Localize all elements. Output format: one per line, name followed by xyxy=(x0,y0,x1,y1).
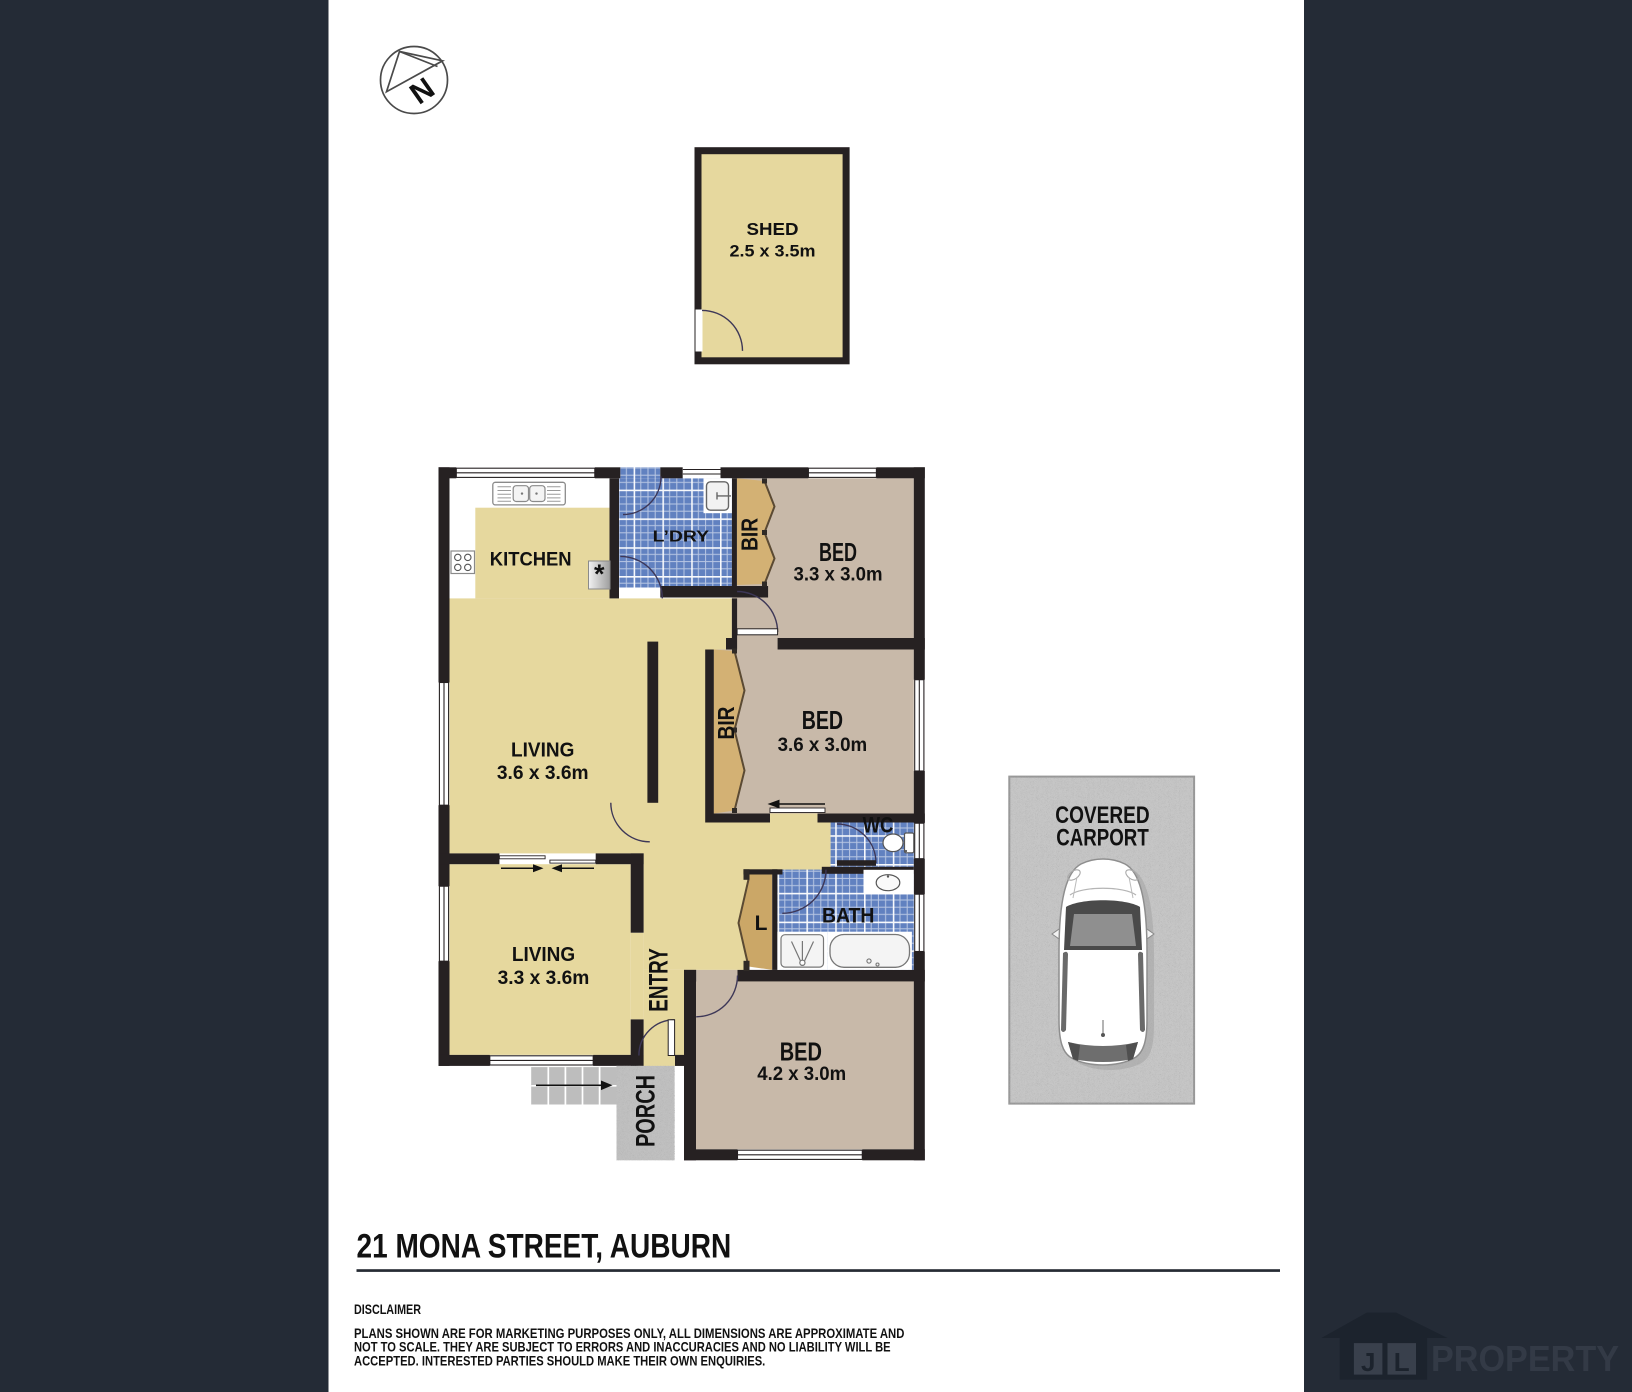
svg-text:ENTRY: ENTRY xyxy=(644,948,674,1012)
svg-text:BED: BED xyxy=(802,705,843,735)
svg-text:*: * xyxy=(594,559,605,589)
svg-text:J: J xyxy=(1361,1347,1375,1377)
svg-text:KITCHEN: KITCHEN xyxy=(490,550,572,571)
svg-text:21 MONA STREET, AUBURN: 21 MONA STREET, AUBURN xyxy=(357,1228,732,1266)
svg-text:SHED: SHED xyxy=(747,219,799,239)
svg-text:2.5 x 3.5m: 2.5 x 3.5m xyxy=(730,242,816,260)
svg-text:BED: BED xyxy=(819,537,857,567)
svg-text:3.6 x 3.6m: 3.6 x 3.6m xyxy=(497,763,589,784)
svg-text:BED: BED xyxy=(780,1036,822,1066)
svg-text:L’DRY: L’DRY xyxy=(653,528,710,545)
svg-text:BIR: BIR xyxy=(737,518,763,551)
svg-text:3.6 x 3.0m: 3.6 x 3.0m xyxy=(778,735,868,756)
svg-text:BATH: BATH xyxy=(822,904,875,927)
svg-text:L: L xyxy=(1394,1347,1410,1377)
svg-text:PROPERTY: PROPERTY xyxy=(1431,1338,1619,1379)
svg-text:PORCH: PORCH xyxy=(631,1075,661,1147)
svg-text:WC: WC xyxy=(863,812,894,837)
svg-text:3.3 x 3.6m: 3.3 x 3.6m xyxy=(498,968,590,989)
svg-text:L: L xyxy=(755,912,768,935)
svg-text:LIVING: LIVING xyxy=(511,739,574,761)
svg-text:ACCEPTED. INTERESTED PARTIES S: ACCEPTED. INTERESTED PARTIES SHOULD MAKE… xyxy=(354,1353,765,1369)
svg-text:3.3 x 3.0m: 3.3 x 3.0m xyxy=(794,565,883,586)
svg-text:4.2 x 3.0m: 4.2 x 3.0m xyxy=(757,1063,846,1085)
svg-text:BIR: BIR xyxy=(713,706,739,739)
svg-text:CARPORT: CARPORT xyxy=(1056,824,1149,851)
svg-text:DISCLAIMER: DISCLAIMER xyxy=(354,1301,421,1317)
svg-text:LIVING: LIVING xyxy=(512,944,575,966)
